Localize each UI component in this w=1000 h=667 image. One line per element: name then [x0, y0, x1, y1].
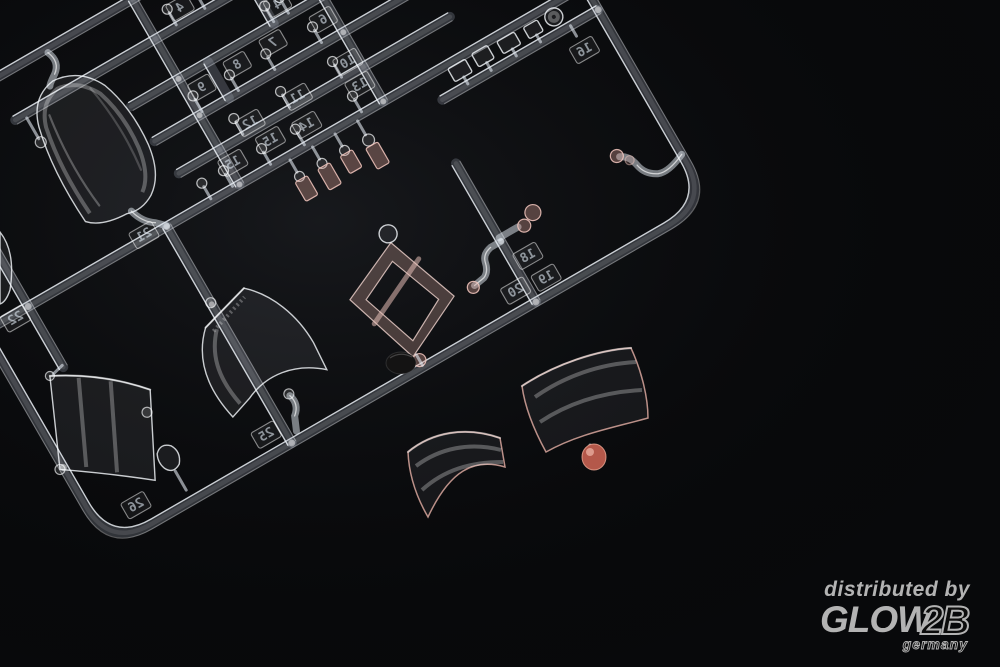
watermark-country: germany [902, 636, 969, 652]
photo-canvas: 4 4 9 8 7 6 12 11 10 15 15 14 13 16 18 2… [0, 0, 1000, 667]
dark-disc [386, 352, 416, 374]
dark-disc-part [386, 352, 416, 374]
red-gate-highlight [586, 448, 594, 456]
watermark-distributed-by: distributed by [824, 578, 971, 601]
watermark-brand-glow: GLOW [820, 599, 935, 640]
red-gate-blob [582, 444, 606, 470]
